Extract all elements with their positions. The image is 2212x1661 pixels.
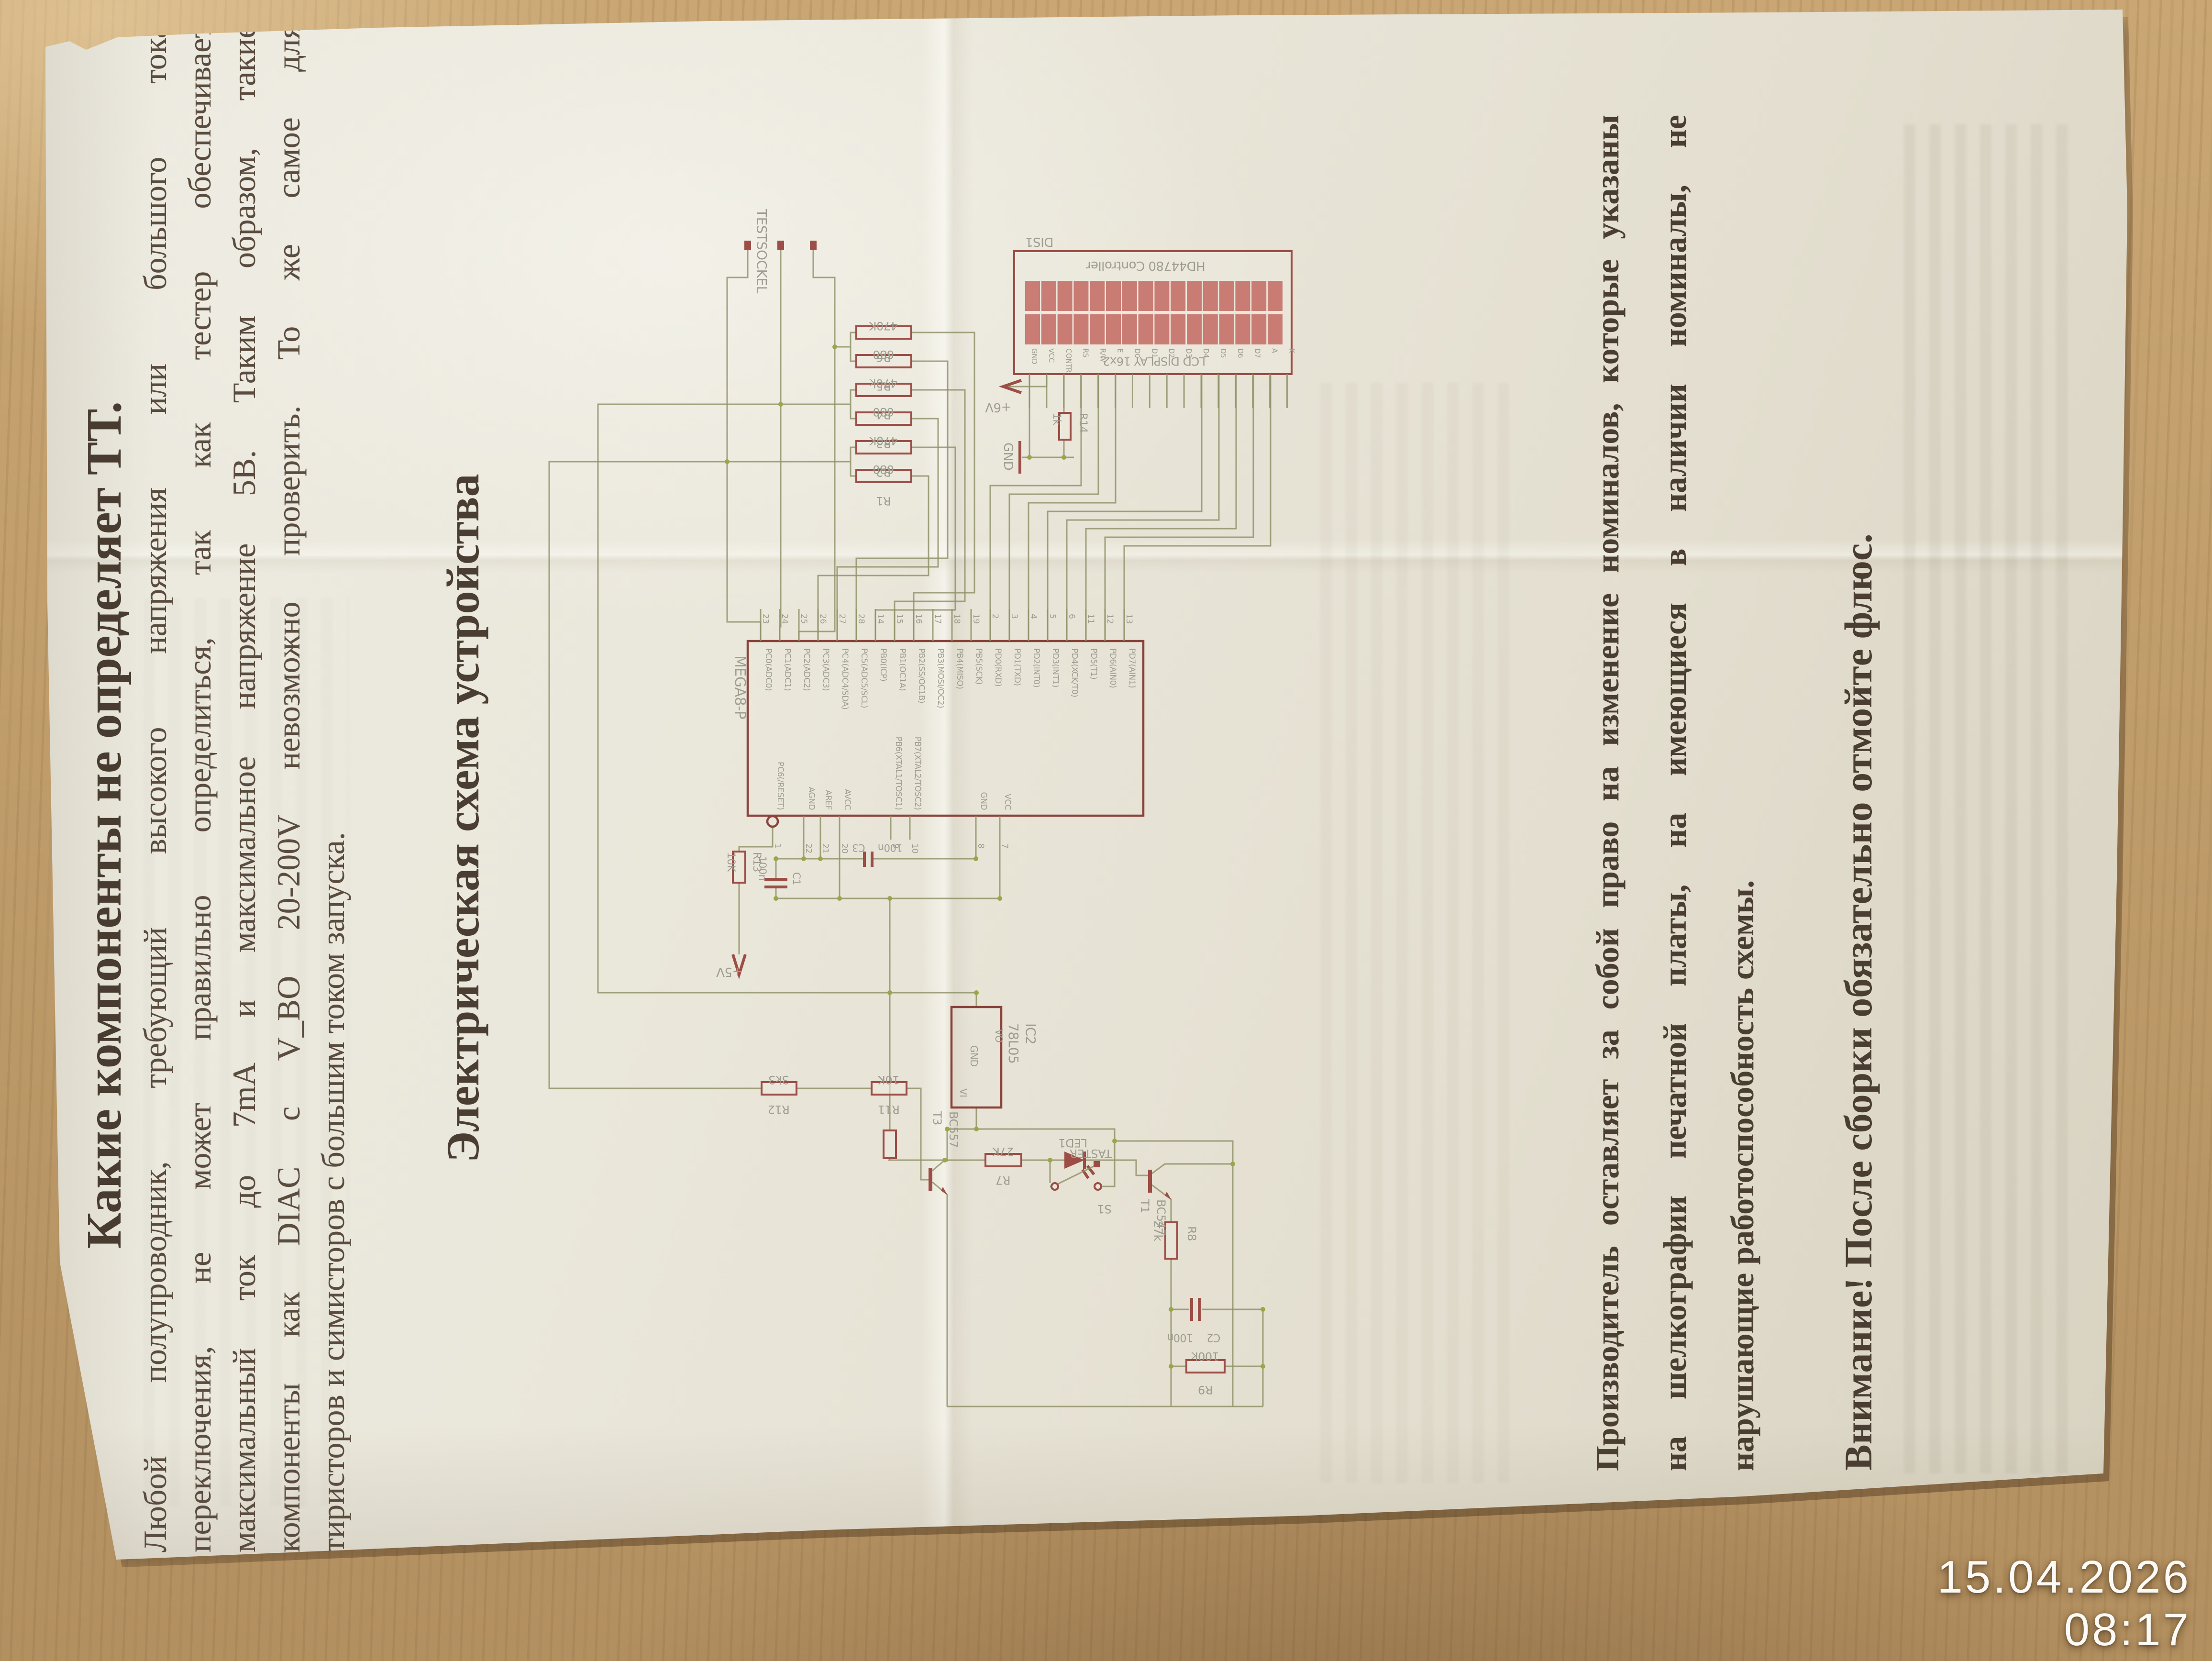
mcu-pin-number: 11 [1086, 614, 1095, 624]
mcu-pin-number: 14 [875, 614, 885, 624]
t1-name: T1 [1138, 1199, 1151, 1213]
lcd-cell [1041, 314, 1056, 344]
mcu-pin-number: 23 [761, 614, 770, 624]
paragraph-line: переключения, не может правильно определ… [177, 24, 222, 1552]
mcu-pin-label: PD0(RXD) [993, 648, 1003, 687]
t3-name: T3 [930, 1111, 944, 1125]
mcu-pin-label: AREF [823, 790, 833, 810]
mcu-pin-label: PC6(/RESET) [775, 762, 785, 810]
note-line: Производитель оставляет за собой право н… [1574, 115, 1641, 1471]
switch-pad [1051, 1183, 1058, 1190]
manufacturer-note: Производитель оставляет за собой право н… [1574, 115, 1777, 1471]
lcd-cell [1219, 281, 1234, 311]
r11-value: 10K [877, 1073, 900, 1086]
mcu-pin-number: 2 [990, 614, 1000, 619]
lcd-cell [1122, 314, 1137, 344]
switch-pad [1095, 1183, 1101, 1190]
ladder-resistor-name: R5 [876, 379, 891, 393]
display-controller-label: HD44780 Controller [1085, 258, 1205, 273]
ladder-resistor-value: 470K [868, 319, 897, 332]
plus6v-label: +6V [985, 400, 1011, 414]
note-line: на шелкографии печатной платы, на имеющи… [1641, 115, 1709, 1471]
mcu-pin-label: PB2(SS/OC1B) [917, 648, 926, 703]
c1-name: C1 [791, 872, 802, 885]
lcd-cell [1154, 281, 1169, 311]
lcd-cell [1268, 281, 1283, 311]
display-pin-label: CONTR [1064, 348, 1073, 373]
display-pin-label: D6 [1236, 348, 1245, 358]
lcd-cell [1106, 314, 1121, 344]
mcu-pin-label: PC2(ADC2) [802, 648, 811, 691]
junction-dots [725, 344, 1265, 1369]
ladder-resistor-name: R6 [876, 351, 891, 364]
lcd-cell [1025, 281, 1040, 311]
lcd-cell [1268, 314, 1283, 344]
mcu-pin-label: PB0(ICP) [878, 648, 888, 681]
paragraph-line: компоненты как DIAC с V_BO 20-200V невоз… [266, 24, 311, 1552]
r7-name: R7 [996, 1174, 1011, 1187]
lcd-cell [1154, 314, 1169, 344]
paragraph-line: Любой полупроводник, требующий высокого … [133, 24, 177, 1552]
mcu-pin-label: PB4(MISO) [955, 648, 964, 689]
gnd-label: GND [1001, 443, 1015, 470]
transistor-t1-bar [1148, 1170, 1152, 1193]
mcu-pin-number: 4 [1029, 614, 1038, 619]
ladder-resistor-name: R3 [876, 437, 891, 450]
mcu-pin-label: PB7(XTAL2/TOSC2) [913, 737, 922, 810]
mcu-pin-number: 7 [1000, 843, 1009, 848]
lcd-cell [1171, 314, 1185, 344]
paragraph-line: максимальный ток до 7mA и максимальное н… [222, 24, 266, 1552]
mcu-pin-label: PD1(TXD) [1012, 648, 1022, 686]
display-pin-label: R/W [1099, 348, 1107, 362]
mcu-pin-number: 6 [1067, 614, 1076, 619]
mcu-pin-label: PD4(XCK/T0) [1070, 648, 1079, 697]
mcu-pin-label: GND [979, 792, 988, 810]
r12-name: R12 [768, 1103, 790, 1116]
mcu-pin-number: 5 [1048, 614, 1057, 619]
document-title: Какие компоненты не определяет ТТ. [67, 215, 141, 1249]
mcu-pin-number: 16 [914, 614, 923, 624]
ic2-name: IC2 [1023, 1023, 1039, 1044]
resistor-ladder: 680R1470KR2680R3470kR4680R5470KR6 [856, 319, 911, 508]
ic2-pin-vi: VI [958, 1088, 969, 1097]
lcd-cell [1139, 314, 1153, 344]
ic2-pin-gnd: GND [968, 1045, 980, 1066]
t3-value: BC557 [947, 1111, 960, 1148]
display-pin-label: D3 [1184, 348, 1193, 358]
r12-value: 3k3 [769, 1073, 789, 1086]
mcu-pin-label: VCC [1003, 794, 1012, 810]
mcu-pin-number: 24 [780, 614, 789, 624]
transistor-t3-arrow [941, 1187, 947, 1195]
section-heading-block: Электрическая схема устройства [412, 431, 514, 1163]
lcd-cell [1122, 281, 1137, 311]
mcu-pin-number: 15 [895, 614, 904, 624]
section-heading: Электрическая схема устройства [412, 431, 514, 1163]
mcu-pin-label: PB5(SCK) [974, 648, 984, 685]
lcd-cell [1203, 314, 1218, 344]
lcd-cell [1106, 281, 1121, 311]
lcd-cell [1251, 314, 1266, 344]
intro-paragraph: Любой полупроводник, требующий высокого … [133, 24, 358, 1552]
mcu-pin-number: 25 [799, 614, 808, 624]
manufacturer-note-block: Производитель оставляет за собой право н… [1574, 115, 1777, 1471]
socket-pin-pad [777, 241, 784, 250]
mcu-pin-number: 18 [952, 614, 962, 624]
mcu-pin-label: PB1(OC1A) [897, 648, 907, 691]
display-pin-label: D0 [1133, 348, 1141, 358]
mcu-pin-label: PC0(ADC0) [763, 648, 773, 691]
mcu-pin-number: 8 [976, 843, 985, 848]
show-through-text-middle [1320, 383, 1521, 1483]
attention-note: Внимание! После сборки обязательно отмой… [1819, 360, 1898, 1471]
lcd-cell [1187, 281, 1202, 311]
lcd-cell [1058, 314, 1073, 344]
display-pin-label: D4 [1202, 348, 1210, 358]
lcd-cell [1219, 314, 1234, 344]
mcu-bottom-pins: 1PC6(/RESET)22AGND21AREF20AVCC9PB6(XTAL1… [773, 737, 1012, 853]
camera-timestamp-overlay: 15.04.2026 08:17 [1923, 1551, 2191, 1656]
mcu-pin-label: AGND [807, 787, 816, 810]
mcu-pin-label: PC3(ADC3) [821, 648, 830, 691]
paragraph-line: тиристоров и симисторов с большим током … [311, 24, 355, 1552]
ladder-resistor-name: R4 [876, 408, 891, 421]
lcd-cell [1235, 314, 1250, 344]
display-pin-label: RS [1082, 348, 1090, 357]
lcd-cell [1073, 281, 1088, 311]
lcd-cell [1025, 314, 1040, 344]
document-title-block: Какие компоненты не определяет ТТ. [67, 215, 141, 1249]
r7-value: 27K [992, 1145, 1014, 1158]
resistor-r10 [884, 1130, 896, 1158]
lcd-cell [1235, 281, 1250, 311]
lcd-cell [1073, 314, 1088, 344]
r13-value: 10K [725, 852, 737, 872]
transistor-t1-arrow [1165, 1192, 1171, 1199]
mcu-pin-number: 9 [891, 843, 900, 848]
mcu-pin-label: PD5(T1) [1089, 648, 1098, 679]
transistor-t3-bar [929, 1168, 932, 1191]
show-through-text-right [1904, 124, 2076, 1473]
reset-pin-circle [767, 816, 778, 827]
mcu-pin-number: 26 [818, 614, 828, 624]
mcu-pin-number: 10 [910, 843, 919, 853]
ic2-value: 78L05 [1006, 1023, 1021, 1063]
mcu-pin-number: 28 [856, 614, 866, 624]
display-pin-label: D5 [1219, 348, 1228, 358]
mcu-pin-number: 27 [837, 614, 847, 624]
mcu-pin-label: PD3(INT1) [1051, 648, 1060, 687]
display-designator: DIS1 [1026, 234, 1054, 249]
switch-contact [1094, 1161, 1100, 1167]
r8-name: R8 [1185, 1226, 1198, 1241]
mcu-pin-number: 20 [840, 843, 849, 853]
lcd-cell [1171, 281, 1185, 311]
lcd-cell [1090, 281, 1105, 311]
note-line: нарушающие работоспособность схемы. [1709, 115, 1776, 1471]
r8-value: 27k [1151, 1220, 1165, 1241]
c2-name: C2 [1207, 1331, 1220, 1343]
mcu-pin-label: PB3(MOSI/OC2) [936, 648, 945, 708]
c3-name: C3 [852, 842, 865, 853]
mcu-pin-number: 22 [804, 843, 813, 853]
lcd-cell [1251, 281, 1266, 311]
mcu-top-pins: 23PC0(ADC0)24PC1(ADC1)25PC2(ADC2)26PC3(A… [761, 609, 1137, 709]
mcu-pin-label: PC5(ADC5/SCL) [859, 648, 869, 708]
mcu-pin-label: AVCC [842, 789, 852, 810]
mcu-pin-number: 19 [971, 614, 981, 624]
led1-label: LED1 [1059, 1136, 1087, 1150]
mcu-pin-number: 13 [1124, 614, 1134, 624]
ic2-pin-vo: VO [993, 1029, 1005, 1042]
display-pin-label: D2 [1167, 348, 1176, 358]
socket-label: TESTSOCKEL [754, 209, 770, 294]
r14-name: R14 [1077, 413, 1089, 433]
c1-value: 100n [757, 856, 768, 880]
mcu-name-label: MEGA8-P [731, 655, 748, 720]
display-pin-label: A [1271, 348, 1279, 354]
mcu-pin-label: PD2(INT0) [1031, 648, 1041, 687]
paper-sheet: Какие компоненты не определяет ТТ. Любой… [41, 9, 2130, 1564]
lcd-cell [1041, 281, 1056, 311]
r9-name: R9 [1198, 1383, 1213, 1396]
display-pin-label: D1 [1150, 348, 1159, 358]
r9-value: 100k [1192, 1350, 1219, 1363]
c2-value: 100n [1167, 1331, 1193, 1343]
lcd-cell [1090, 314, 1105, 344]
r11-name: R11 [878, 1103, 900, 1116]
circuit-schematic: TESTSOCKEL MEGA8-P DIS1 HD44780 Controll… [524, 189, 1318, 1442]
display-pin-label: GND [1030, 348, 1039, 364]
mcu-pin-label: PB6(XTAL1/TOSC1) [894, 737, 903, 810]
mcu-pin-number: 21 [820, 843, 830, 853]
lcd-cell [1058, 281, 1073, 311]
mcu-pin-number: 1 [773, 843, 782, 848]
r14-value: 1k [1051, 413, 1062, 425]
photo-of-document: { "photo": { "timestamp": "15.04.2026 08… [0, 0, 2212, 1661]
mcu-pin-label: PD6(AIN0) [1108, 648, 1117, 688]
s1-name: S1 [1097, 1202, 1112, 1216]
plus5v-label: +5V [716, 964, 742, 979]
intro-paragraph-block: Любой полупроводник, требующий высокого … [133, 24, 358, 1552]
lcd-cell [1203, 281, 1218, 311]
socket-pin-pad [744, 241, 751, 250]
lcd-cell [1187, 314, 1202, 344]
mcu-pin-number: 12 [1105, 614, 1115, 624]
display-pin-label: E [1116, 348, 1125, 353]
attention-note-block: Внимание! После сборки обязательно отмой… [1819, 360, 1898, 1471]
socket-pin-pad [810, 241, 817, 250]
capacitor-c2 [1192, 1298, 1199, 1321]
mcu-pin-label: PD7(AIN1) [1127, 648, 1137, 688]
lcd-cell [1139, 281, 1153, 311]
schematic-labels: TESTSOCKEL MEGA8-P DIS1 HD44780 Controll… [716, 209, 1220, 1396]
mcu-pin-label: PC4(ADC4/SDA) [840, 648, 850, 709]
switch-lever [1058, 1166, 1095, 1184]
display-pin-label: VCC [1047, 348, 1056, 363]
mcu-pin-number: 3 [1009, 614, 1019, 619]
mcu-pin-number: 17 [933, 614, 942, 624]
mcu-pin-label: PC1(ADC1) [783, 648, 792, 691]
ladder-resistor-name: R2 [876, 465, 891, 479]
ladder-resistor-name: R1 [876, 494, 891, 508]
display-pin-label: D7 [1253, 348, 1262, 358]
